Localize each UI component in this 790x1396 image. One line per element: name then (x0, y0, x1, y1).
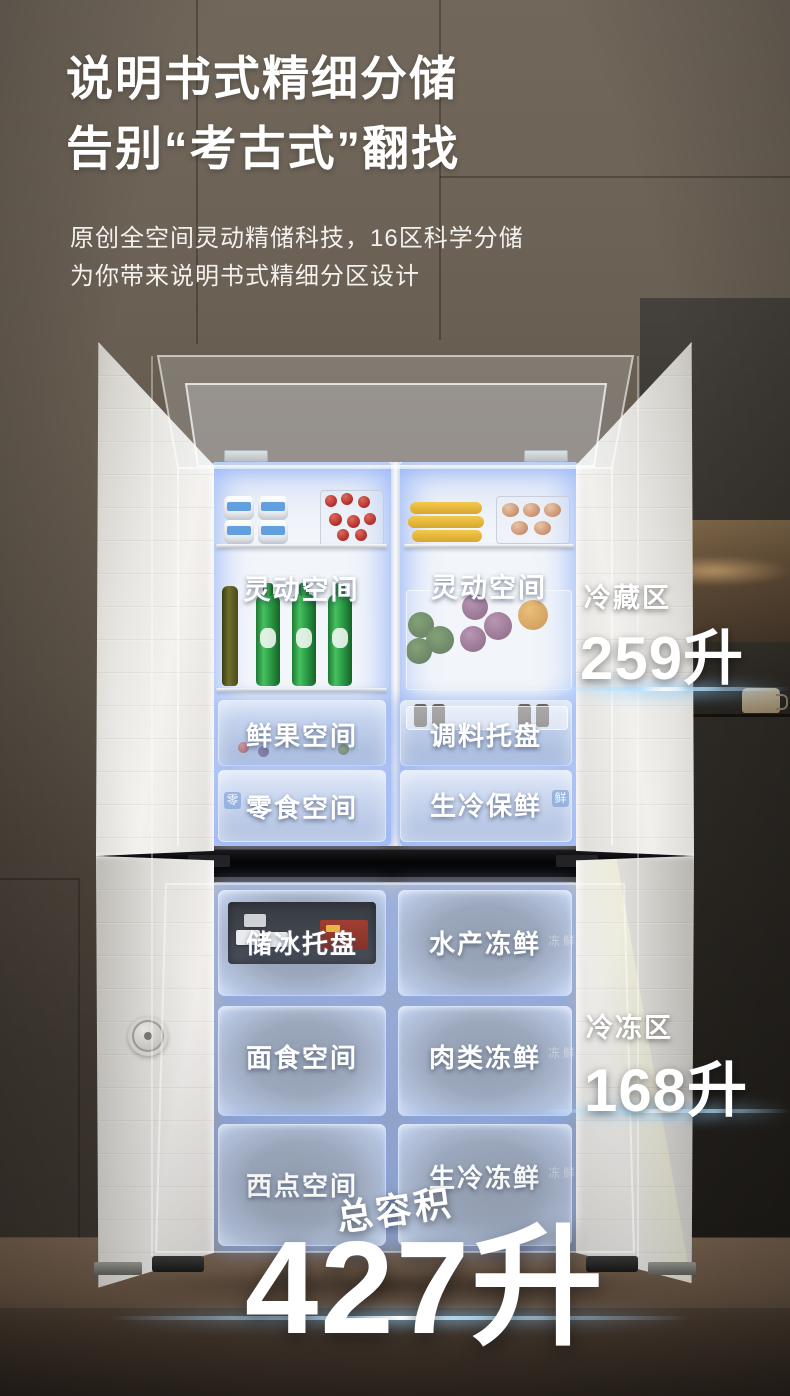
fresh-badge-icon: 鲜 (552, 790, 569, 807)
label-flex-right: 灵动空间 (400, 566, 578, 605)
promo-page: 灵动空间 灵动空间 鲜果空间 调料托盘 零食空间 生冷保鲜 零 鲜 储冰托盘 水… (0, 0, 790, 1396)
temperature-dial (128, 1016, 168, 1056)
left-cabinet-edge (78, 880, 80, 1238)
label-seasoning: 调料托盘 (400, 716, 572, 753)
label-ice-tray: 储冰托盘 (218, 924, 386, 961)
egg-tray (496, 496, 570, 544)
label-flex-left: 灵动空间 (212, 568, 391, 607)
corn (408, 516, 484, 528)
frozen-mark: 冻鲜 (548, 1164, 578, 1181)
left-cabinet-top-edge (0, 878, 80, 880)
total-capacity-value: 427升 (30, 1222, 790, 1354)
green-bottle (328, 594, 352, 686)
cabinet-seam-horizontal (440, 176, 790, 178)
frozen-mark: 冻鲜 (548, 1044, 578, 1061)
fridge-zone-capacity: 259升 (580, 610, 744, 697)
produce-tray (406, 590, 572, 690)
green-bottle (292, 594, 316, 686)
label-pasta: 面食空间 (218, 1038, 386, 1075)
label-seafood-frozen: 水产冻鲜 (398, 924, 572, 961)
freezer-zone-capacity: 168升 (584, 1042, 748, 1129)
yogurt-cup (258, 496, 288, 520)
label-chilled-fresh: 生冷保鲜 (400, 786, 572, 823)
yogurt-cup (224, 496, 254, 520)
label-meat-frozen: 肉类冻鲜 (398, 1038, 572, 1075)
subtitle-line-1: 原创全空间灵动精储科技，16区科学分储 (70, 220, 524, 258)
title-line-1: 说明书式精细分储 (66, 44, 460, 114)
top-hinge-right (524, 450, 568, 462)
snack-badge-icon: 零 (224, 792, 241, 809)
corn (412, 530, 482, 542)
subtitle-line-2: 为你带来说明书式精细分区设计 (70, 258, 524, 296)
strawberry-basket (320, 490, 384, 546)
corn (410, 502, 482, 514)
yogurt-cup (224, 520, 254, 544)
green-bottle (256, 594, 280, 686)
label-snack: 零食空间 (218, 788, 386, 825)
label-fresh-fruit: 鲜果空间 (218, 716, 386, 753)
title-line-2: 告别“考古式”翻找 (66, 114, 460, 184)
interior-divider (391, 462, 400, 846)
freezer-zone-name: 冷冻区 (586, 1006, 673, 1045)
page-title: 说明书式精细分储 告别“考古式”翻找 (66, 44, 460, 184)
yogurt-cup (258, 520, 288, 544)
top-hinge-left (224, 450, 268, 462)
frozen-mark: 冻鲜 (548, 932, 578, 949)
page-subtitle: 原创全空间灵动精储科技，16区科学分储 为你带来说明书式精细分区设计 (70, 220, 524, 296)
